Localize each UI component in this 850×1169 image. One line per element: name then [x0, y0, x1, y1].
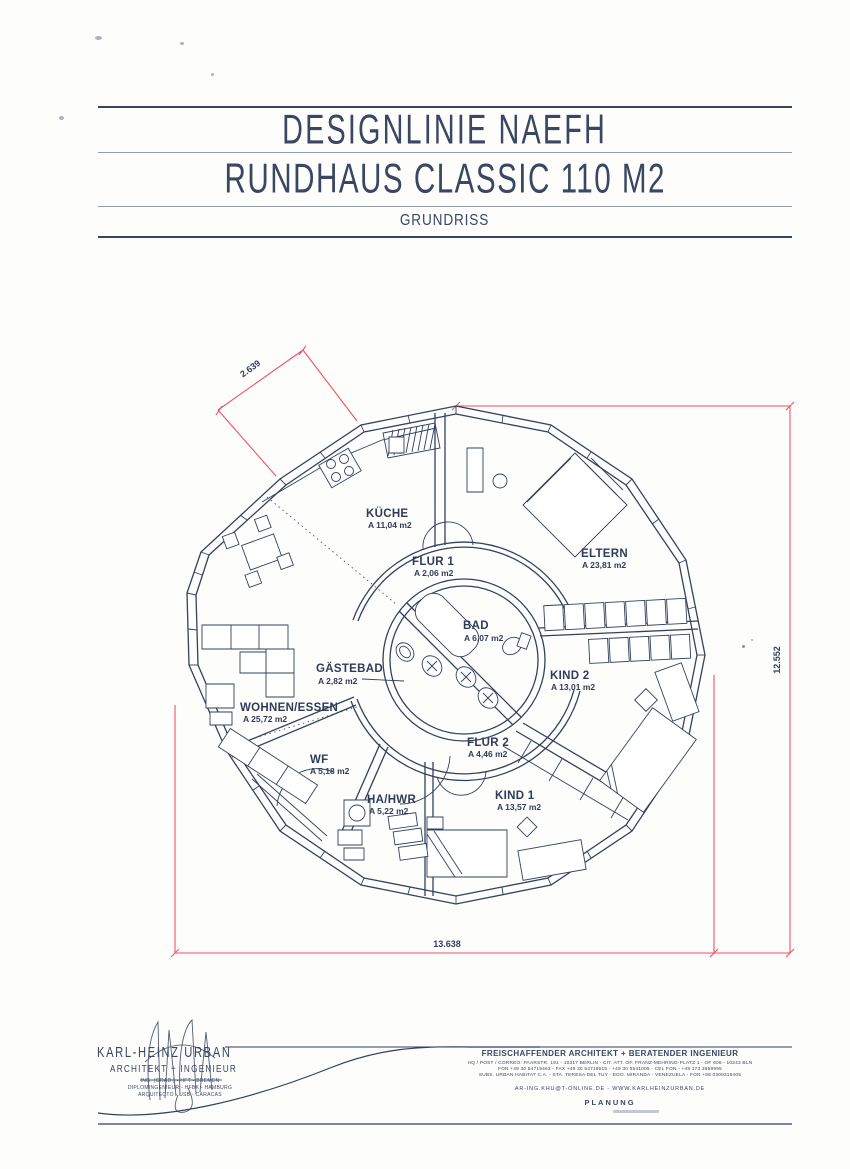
- office-title: FREISCHAFFENDER ARCHITEKT + BERATENDER I…: [430, 1049, 790, 1058]
- office-contact: HQ / POST / CORREO: PAARSTR. 191 - 10317…: [430, 1061, 790, 1079]
- bath-core: [383, 579, 545, 741]
- side-table: [517, 817, 537, 837]
- side-table: [635, 689, 658, 712]
- room-label-hahwr: HA/HWR: [367, 794, 416, 806]
- stool: [493, 474, 507, 488]
- bed: [427, 830, 507, 877]
- room-label-gaestebad: GÄSTEBAD: [316, 662, 383, 675]
- stove: [319, 448, 361, 488]
- room-label-wohnen: WOHNEN/ESSEN: [240, 702, 338, 714]
- contact-line: SUBS. URBAN HABITAT C.A. - STA. TERESA D…: [430, 1073, 790, 1079]
- illegible-stamp: [613, 1110, 659, 1113]
- architect-name: KARL-HEINZ URBAN: [97, 1044, 232, 1061]
- room-area-hahwr: A 5,22 m2: [369, 806, 409, 816]
- cabinet: [344, 848, 364, 860]
- room-area-kind1: A 13,57 m2: [497, 802, 541, 812]
- coffee-table: [240, 652, 266, 673]
- room-label-bad: BAD: [463, 620, 489, 632]
- room-area-gaestebad: A 2,82 m2: [318, 676, 358, 686]
- drawing-sheet: DESIGNLINIE NAEFH RUNDHAUS CLASSIC 110 M…: [0, 0, 850, 1169]
- room-area-wohnen: A 25,72 m2: [243, 714, 287, 724]
- double-bed: [523, 453, 627, 557]
- room-label-eltern: ELTERN: [581, 548, 628, 560]
- floor-plan-drawing: 2.639 12.552 13.638: [0, 0, 850, 1169]
- architect-title: ARCHITEKT + INGENIEUR: [110, 1064, 237, 1075]
- room-area-kueche: A 11,04 m2: [368, 520, 412, 530]
- room-label-kind1: KIND 1: [495, 790, 535, 802]
- parents-furniture: [467, 448, 627, 557]
- kitchen-fittings: [262, 423, 440, 502]
- web-line: AR-ING.KHU@T-ONLINE.DE - WWW.KARLHEINZUR…: [430, 1086, 790, 1092]
- door-swing: [423, 522, 473, 549]
- room-area-flur2: A 4,46 m2: [468, 749, 508, 759]
- room-label-flur2: FLUR 2: [467, 737, 509, 749]
- room-area-bad: A 6,07 m2: [464, 633, 504, 643]
- credential-line: ING. (GRAD.) - HFT - BREMEN: [100, 1078, 260, 1085]
- armchair: [206, 684, 234, 708]
- room-area-flur1: A 2,06 m2: [414, 568, 454, 578]
- headboard: [427, 817, 443, 829]
- room-label-flur1: FLUR 1: [412, 556, 454, 568]
- cabinet: [389, 437, 404, 453]
- side-table: [210, 712, 232, 725]
- desk: [518, 840, 586, 881]
- sofa: [202, 625, 288, 649]
- dim-overall-width: 13.638: [433, 939, 461, 949]
- living-furniture: [202, 512, 327, 841]
- bed: [655, 663, 699, 721]
- bed: [600, 708, 697, 813]
- bench: [218, 728, 317, 803]
- room-label-kueche: KÜCHE: [366, 507, 408, 520]
- room-label-wf: WF: [310, 754, 328, 766]
- dim-overall-height: 12.552: [772, 646, 782, 674]
- cabinet: [338, 830, 362, 845]
- wardrobe: [467, 448, 483, 492]
- child2-furniture: [544, 598, 699, 721]
- sink: [392, 639, 417, 665]
- door-swing: [437, 772, 486, 795]
- room-label-kind2: KIND 2: [550, 670, 590, 682]
- room-area-wf: A 5,18 m2: [310, 766, 350, 776]
- credential-line: DIPLOMINGENIEUR - HFBK - HAMBURG: [100, 1085, 260, 1092]
- room-area-kind2: A 13,01 m2: [551, 682, 595, 692]
- project-stage: PLANUNG: [430, 1098, 790, 1107]
- credential-line: ARQUITECTO - USB - CARACAS: [100, 1092, 260, 1099]
- dining-table: [242, 534, 283, 570]
- room-area-eltern: A 23,81 m2: [582, 560, 626, 570]
- toilet: [418, 652, 446, 680]
- cistern: [517, 633, 531, 650]
- architect-credentials: ING. (GRAD.) - HFT - BREMEN DIPLOMINGENI…: [100, 1078, 260, 1099]
- toilet: [474, 684, 502, 712]
- dim-facade-segment: 2.639: [238, 358, 262, 379]
